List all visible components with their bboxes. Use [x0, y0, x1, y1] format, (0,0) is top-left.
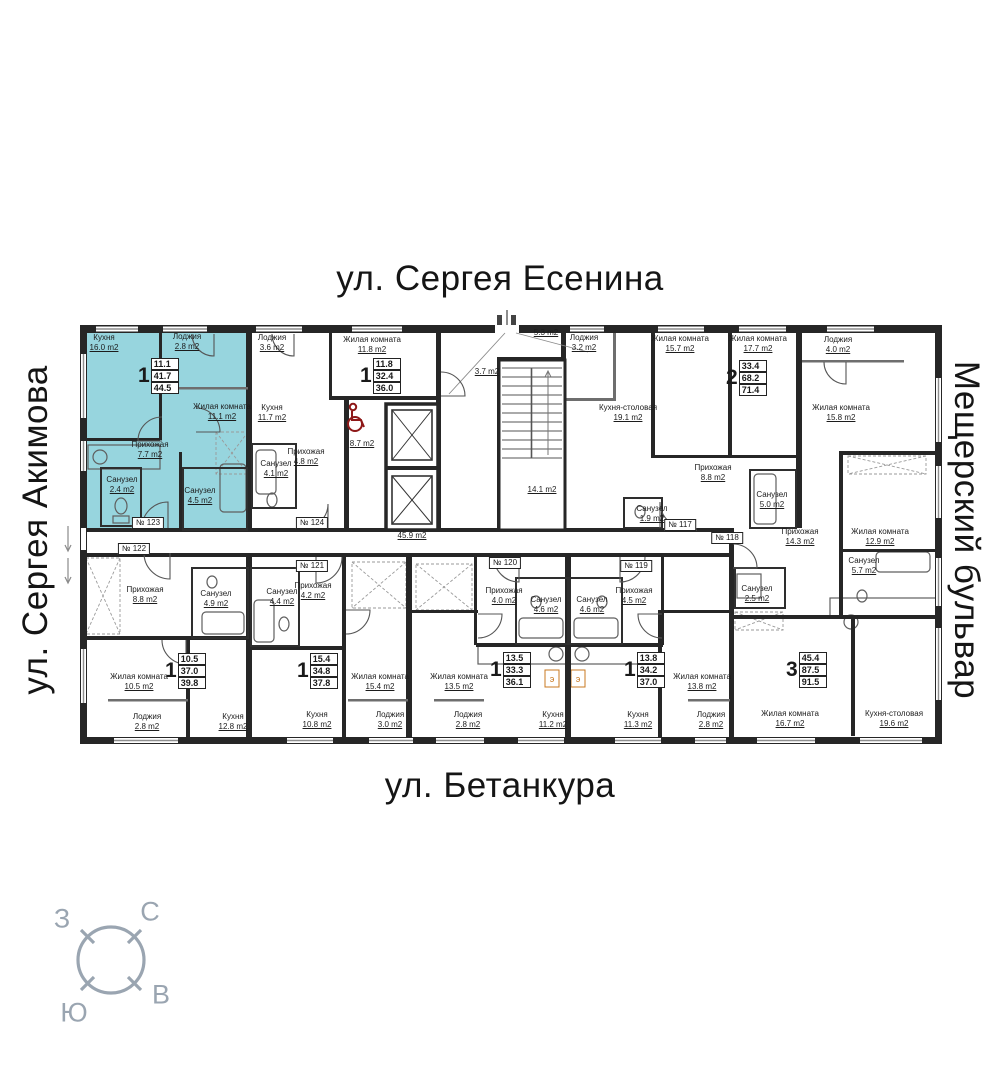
svg-text:э: э	[576, 674, 581, 684]
svg-text:э: э	[550, 674, 555, 684]
compass-north-label: С	[140, 897, 160, 928]
highlighted-apartment-123[interactable]	[84, 328, 250, 532]
wheelchair-icon	[348, 404, 364, 431]
staircase-icon	[499, 360, 565, 530]
exit-arrows	[65, 526, 71, 583]
floor-plan-page: ул. Сергея Есенина ул. Сергея Акимова Ме…	[0, 0, 1001, 1068]
compass-east-label: В	[152, 980, 170, 1011]
compass-icon	[78, 927, 144, 993]
compass-west-label: З	[54, 904, 70, 935]
compass-south-label: Ю	[60, 998, 87, 1029]
elevator-icon	[386, 404, 438, 530]
